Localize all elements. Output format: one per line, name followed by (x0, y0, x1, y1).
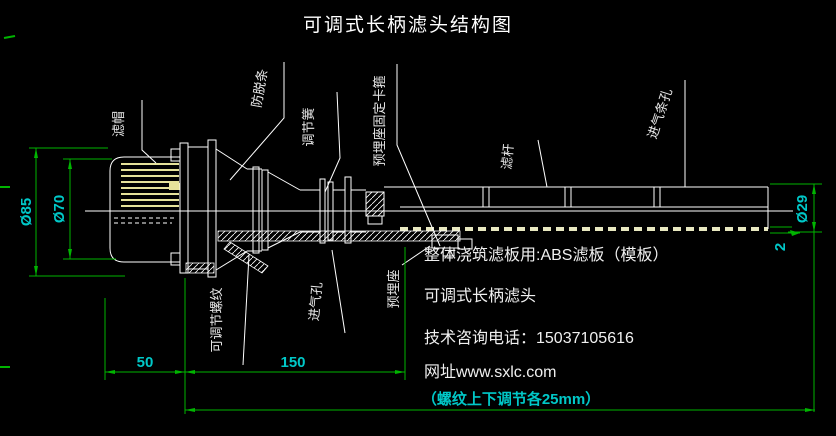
label-air-inlet-slot: 进气条孔 (645, 87, 675, 141)
dim-cap-outer: Ø85 (18, 198, 35, 226)
drawing-title: 可调式长柄滤头结构图 (303, 14, 513, 36)
filter-cap (110, 157, 180, 262)
plate-note: 整体浇筑滤板用:ABS滤板（模板） (424, 246, 668, 264)
dim-cap-inner: Ø70 (51, 195, 68, 223)
phone-line: 技术咨询电话：15037105616 (424, 329, 634, 347)
seat-bottom-block (186, 263, 214, 273)
info-block: 整体浇筑滤板用:ABS滤板（模板） 可调式长柄滤头 技术咨询电话：1503710… (424, 246, 668, 381)
label-adjust-spring: 调节簧 (301, 107, 316, 146)
label-embed-seat-clamp: 预埋座固定卡箍 (372, 75, 387, 166)
filter-plate-hatch (186, 231, 460, 273)
dim-length-150: 150 (280, 354, 305, 371)
diagonal-strip (224, 242, 268, 273)
clamp-block (366, 192, 384, 216)
label-anti-slip-strip: 防脱条 (249, 68, 271, 109)
dim-length-50: 50 (137, 354, 154, 371)
label-embed-seat: 预埋座 (386, 269, 401, 308)
label-filter-cap: 滤帽 (111, 111, 126, 137)
dim-rod-diameter: Ø29 (794, 195, 811, 223)
label-air-inlet-hole: 进气孔 (306, 282, 324, 322)
label-filter-rod: 滤杆 (499, 143, 516, 170)
website-line: 网址www.sxlc.com (424, 363, 556, 381)
dim-thread-note: （螺纹上下调节各25mm） (422, 390, 600, 408)
filter-rod (384, 187, 768, 229)
cad-viewport: 可调式长柄滤头结构图 (0, 0, 836, 436)
label-adjustable-thread: 可调节螺纹 (209, 287, 224, 352)
product-name: 可调式长柄滤头 (424, 287, 536, 305)
margin-ticks (0, 36, 15, 367)
cad-drawing: 可调式长柄滤头结构图 (0, 0, 836, 436)
flange (171, 140, 216, 277)
part-labels: 滤帽 防脱条 调节簧 预埋座固定卡箍 滤杆 进气条孔 可调节螺纹 进气孔 预埋座 (111, 68, 675, 353)
dim-slot-width: 2 (772, 243, 789, 251)
cap-strip-block (169, 183, 180, 190)
